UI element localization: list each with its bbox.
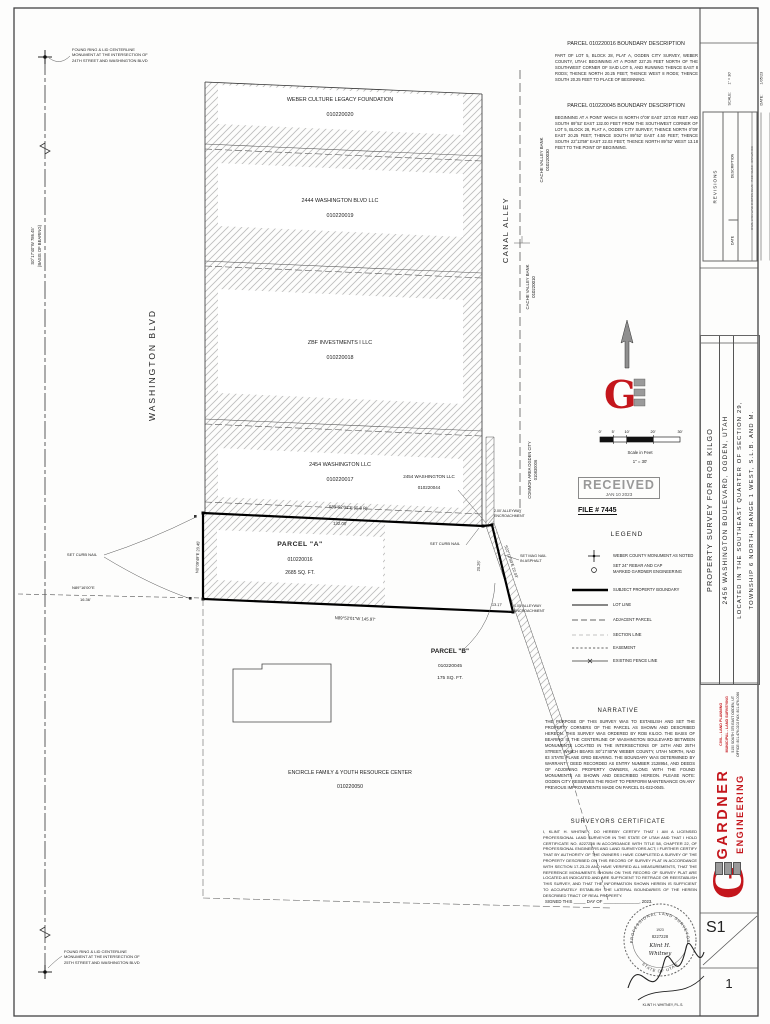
parcel-a-id: 010220016 xyxy=(230,557,370,564)
signature-name: KLINT H. WHITNEY, P.L.S. xyxy=(618,1003,708,1008)
revisions-date-header: DATE xyxy=(728,220,737,261)
parcel-id-label: 010220020 xyxy=(240,112,440,119)
svg-text:N89°52'01"W 145.97': N89°52'01"W 145.97' xyxy=(335,615,376,622)
svg-text:CANAL ALLEY: CANAL ALLEY xyxy=(501,197,510,263)
file-number: FILE # 7445 xyxy=(578,507,617,515)
legend-item-label: ADJACENT PARCEL xyxy=(613,617,699,623)
project-title-line3: LOCATED IN THE SOUTHEAST QUARTER OF SECT… xyxy=(734,336,746,684)
parcel-id-label: 010220019 xyxy=(240,213,440,220)
svg-text:13.17': 13.17' xyxy=(492,603,503,607)
building-footprint xyxy=(233,664,331,722)
svg-text:CACHE VALLEY BANK: CACHE VALLEY BANK xyxy=(539,137,544,182)
project-title-line4: TOWNSHIP 6 NORTH, RANGE 1 WEST, S.L.B. A… xyxy=(747,336,759,684)
svg-text:CACHE VALLEY BANK: CACHE VALLEY BANK xyxy=(525,264,530,309)
surveyor-seal: PROFESSIONAL LAND SURVEYOR STATE OF UTAH… xyxy=(624,904,696,976)
certificate-body: I, KLINT H. WHITNEY, DO HEREBY CERTIFY T… xyxy=(543,829,697,899)
revisions-description-header: DESCRIPTION xyxy=(728,113,737,220)
svg-text:10': 10' xyxy=(625,430,630,434)
south-parcel-lines xyxy=(18,594,612,908)
legend-item-label: EASEMENT xyxy=(613,645,699,651)
revisions-title: REVISIONS xyxy=(708,113,723,261)
svg-text:8227228: 8227228 xyxy=(652,934,669,939)
received-stamp-date: JAN 10 2023 xyxy=(579,492,659,497)
parcel-owner-label: WEBER CULTURE LEGACY FOUNDATION xyxy=(240,97,440,104)
project-title-line1: PROPERTY SURVEY FOR ROB KILGO xyxy=(701,336,720,684)
gardner-g-icon: G xyxy=(707,864,753,899)
found-monument-top-icon xyxy=(38,50,52,64)
parcel-b-id: 010220045 xyxy=(410,664,490,670)
parcel-owner-label: 2444 WASHINGTON BLVD LLC xyxy=(240,198,440,205)
received-stamp-word: RECEIVED xyxy=(579,479,659,492)
legend-item-label: SET 24" REBAR AND CAP MARKED GARDNER ENG… xyxy=(613,563,699,574)
logo-name-engineering: ENGINEERING xyxy=(734,774,746,854)
sheet-code: S1 xyxy=(706,917,740,939)
parcel-b-area: 175 SQ. FT. xyxy=(410,676,490,682)
sheet-number: 1 xyxy=(712,975,746,993)
svg-text:Whitney: Whitney xyxy=(649,951,673,957)
adjacent-parcel-block xyxy=(205,82,482,526)
legend-item-label: LOT LINE xyxy=(613,602,699,608)
alleyway-encroachment-top: 2.00' ALLEYWAY ENCROACHMENT xyxy=(494,509,536,519)
logo-phone: OFFICE: 801.476.0202 FAX: 801.476.0066 xyxy=(736,692,741,757)
svg-text:N0°09'49"E 20.45': N0°09'49"E 20.45' xyxy=(194,540,200,573)
legend-item-label: EXISTING FENCE LINE xyxy=(613,658,699,664)
parcel16-description-body: PART OF LOT 5, BLOCK 28, PLAT A, OGDEN C… xyxy=(555,53,698,83)
north-arrow-icon xyxy=(621,320,633,368)
svg-text:N89°16'00"E: N89°16'00"E xyxy=(72,585,95,590)
gardner-engineering-logo: G GARDNER ENGINEERING CIVIL - LAND PLANN… xyxy=(700,685,760,905)
legend-symbols xyxy=(572,550,608,663)
svg-text:0': 0' xyxy=(599,430,602,434)
alleyway-encroachment-bottom: 1.05' ALLEYWAY ENCROACHMENT xyxy=(514,604,556,614)
svg-text:20.25': 20.25' xyxy=(476,560,481,571)
parcel-owner-label: 2454 WASHINGTON LLC xyxy=(240,462,440,469)
project-title-block: PROPERTY SURVEY FOR ROB KILGO 2456 WASHI… xyxy=(700,335,760,685)
received-stamp: RECEIVED JAN 10 2023 FILE # 7445 xyxy=(578,477,660,517)
revisions-table: REVISIONS DATE DESCRIPTION xyxy=(703,112,758,262)
narrative-title: NARRATIVE xyxy=(558,707,678,715)
monument-note-top: FOUND RING & LID CENTERLINE MONUMENT AT … xyxy=(72,47,190,63)
washington-blvd-centerline xyxy=(38,50,70,979)
svg-text:132.00': 132.00' xyxy=(333,521,347,527)
legend-item-label: SECTION LINE xyxy=(613,632,699,638)
set-curb-nail-callout: SET CURB NAIL xyxy=(58,552,106,557)
south-parcel-owner: ENCIRCLE FAMILY & YOUTH RESOURCE CENTER xyxy=(266,770,434,777)
svg-text:16.36': 16.36' xyxy=(80,597,91,602)
parcel45-description-title: PARCEL 010220045 BOUNDARY DESCRIPTION xyxy=(552,103,700,110)
scale-bar: 0' 5' 10' 20' 30' xyxy=(599,430,683,444)
sliver-owner-label: 2454 WASHINGTON LLC xyxy=(396,474,462,480)
parcel-owner-label: ZBF INVESTMENTS I LLC xyxy=(240,340,440,347)
sliver-id-label: 010220044 xyxy=(396,485,462,491)
gardner-logo-mark-icon: G xyxy=(604,372,645,417)
project-title-line2: 2456 WASHINGTON BOULEVARD, OGDEN, UTAH xyxy=(720,336,734,684)
svg-text:WASHINGTON BLVD: WASHINGTON BLVD xyxy=(147,309,157,421)
set-mag-nail-callout: SET MAG NAIL IN ASPHALT xyxy=(520,554,562,564)
monument-note-bottom: FOUND RING & LID CENTERLINE MONUMENT AT … xyxy=(64,949,182,965)
certificate-signed-line: SIGNED THIS _____ DAY OF _______________… xyxy=(545,899,695,905)
svg-text:Klint H.: Klint H. xyxy=(648,943,671,949)
south-parcel-id: 010220050 xyxy=(266,784,434,791)
svg-text:010830006: 010830006 xyxy=(533,459,538,480)
svg-text:(BASIS OF BEARING): (BASIS OF BEARING) xyxy=(37,224,42,267)
legend-item-label: SUBJECT PROPERTY BOUNDARY xyxy=(613,587,699,593)
logo-tagline2: MUNICIPAL - LAND SURVEYING xyxy=(725,696,730,752)
survey-sheet: G 0' 5' 10' 20' 30' PROF xyxy=(0,0,770,1024)
scalebar-caption: Scale in Feet xyxy=(600,450,680,456)
found-monument-bottom-icon xyxy=(38,965,52,979)
svg-text:010220030: 010220030 xyxy=(545,149,550,171)
narrative-body: THE PURPOSE OF THIS SURVEY WAS TO ESTABL… xyxy=(545,719,695,791)
svg-text:S0°17'40"W 786.45': S0°17'40"W 786.45' xyxy=(30,227,35,264)
parcel-b-name: PARCEL "B" xyxy=(410,648,490,657)
certificate-title: SURVEYORS CERTIFICATE xyxy=(548,818,688,826)
svg-text:1923: 1923 xyxy=(656,928,664,932)
set-curb-nail-callout: SET CURB NAIL xyxy=(422,541,468,546)
logo-tagline1: CIVIL - LAND PLANNING xyxy=(719,703,724,746)
parcel16-description-title: PARCEL 010220016 BOUNDARY DESCRIPTION xyxy=(552,41,700,48)
svg-text:G: G xyxy=(604,372,636,417)
parcel-a-area: 2685 SQ. FT. xyxy=(230,570,370,577)
titleblock-info-fields: SCALE:1" = 30' DATE:1/05/23 DESIGN:-----… xyxy=(703,42,758,108)
svg-text:COMMON AREA OGDEN CITY: COMMON AREA OGDEN CITY xyxy=(527,441,532,499)
parcel-id-label: 010220018 xyxy=(240,355,440,362)
parcel-a-name: PARCEL "A" xyxy=(230,540,370,549)
legend-item-label: WEBER COUNTY MONUMENT AS NOTED xyxy=(613,553,699,559)
svg-text:20': 20' xyxy=(651,430,656,434)
svg-text:5': 5' xyxy=(612,430,615,434)
svg-text:30': 30' xyxy=(678,430,683,434)
scalebar-ratio: 1" = 30' xyxy=(600,459,680,465)
logo-name-gardner: GARDNER xyxy=(714,769,734,860)
parcel45-description-body: BEGINNING AT A POINT WHICH IS NORTH 0°09… xyxy=(555,115,698,151)
logo-address: 5150 SOUTH 375 EAST OGDEN, UT xyxy=(731,696,736,752)
svg-text:010220010: 010220010 xyxy=(531,276,536,298)
legend-title: LEGEND xyxy=(577,531,677,540)
